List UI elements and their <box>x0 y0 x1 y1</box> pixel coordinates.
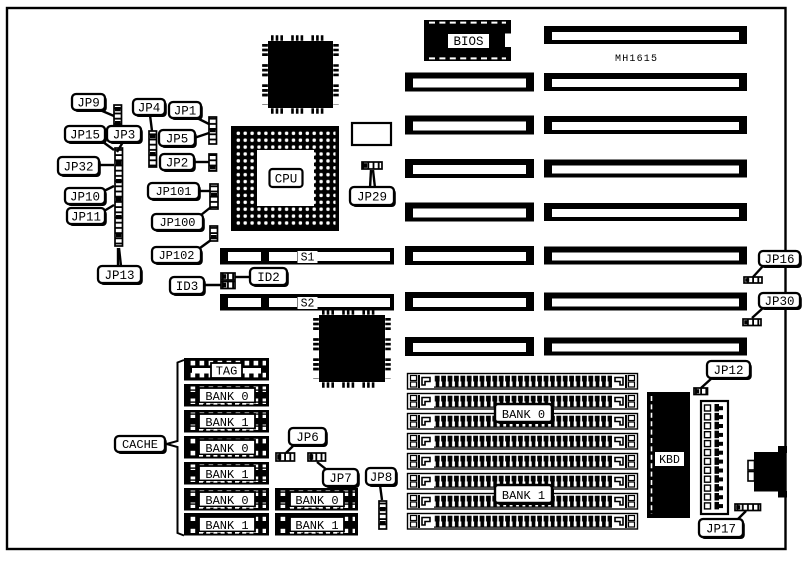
svg-text:BANK 0: BANK 0 <box>502 408 545 422</box>
svg-text:ID2: ID2 <box>257 271 280 285</box>
svg-text:JP11: JP11 <box>71 210 101 224</box>
svg-text:BIOS: BIOS <box>453 35 483 49</box>
svg-text:JP102: JP102 <box>158 249 194 263</box>
svg-text:KBD: KBD <box>659 454 680 467</box>
svg-text:JP29: JP29 <box>357 190 387 204</box>
svg-text:BANK 0: BANK 0 <box>205 442 248 456</box>
svg-text:BANK 1: BANK 1 <box>205 519 248 533</box>
svg-text:JP2: JP2 <box>166 156 189 170</box>
svg-text:JP9: JP9 <box>77 96 100 110</box>
svg-text:JP6: JP6 <box>296 431 319 445</box>
svg-text:JP12: JP12 <box>713 364 743 378</box>
svg-text:CACHE: CACHE <box>122 438 158 452</box>
svg-text:JP1: JP1 <box>174 104 197 118</box>
svg-text:MH1615: MH1615 <box>615 54 658 65</box>
svg-text:JP7: JP7 <box>329 472 352 486</box>
svg-text:TAG: TAG <box>216 365 238 379</box>
svg-text:JP32: JP32 <box>63 160 93 174</box>
svg-text:S2: S2 <box>301 298 315 311</box>
svg-text:BANK 0: BANK 0 <box>205 390 248 404</box>
svg-text:BANK 1: BANK 1 <box>295 519 338 533</box>
svg-text:JP15: JP15 <box>70 128 100 142</box>
svg-text:BANK 0: BANK 0 <box>205 494 248 508</box>
svg-text:JP30: JP30 <box>764 295 794 309</box>
svg-text:ID3: ID3 <box>176 280 199 294</box>
svg-text:JP3: JP3 <box>113 128 136 142</box>
svg-text:JP17: JP17 <box>706 522 736 536</box>
svg-text:S1: S1 <box>301 252 315 265</box>
svg-text:BANK 0: BANK 0 <box>295 494 338 508</box>
svg-text:JP10: JP10 <box>70 190 100 204</box>
svg-text:JP100: JP100 <box>159 216 195 230</box>
svg-text:JP101: JP101 <box>155 185 191 199</box>
svg-text:BANK 1: BANK 1 <box>205 468 248 482</box>
svg-text:JP8: JP8 <box>370 471 393 485</box>
svg-text:JP16: JP16 <box>764 253 794 267</box>
svg-text:CPU: CPU <box>275 173 298 187</box>
svg-text:BANK 1: BANK 1 <box>502 489 545 503</box>
svg-text:JP4: JP4 <box>138 101 161 115</box>
svg-text:BANK 1: BANK 1 <box>205 416 248 430</box>
svg-text:JP5: JP5 <box>166 132 189 146</box>
svg-text:JP13: JP13 <box>104 269 134 283</box>
